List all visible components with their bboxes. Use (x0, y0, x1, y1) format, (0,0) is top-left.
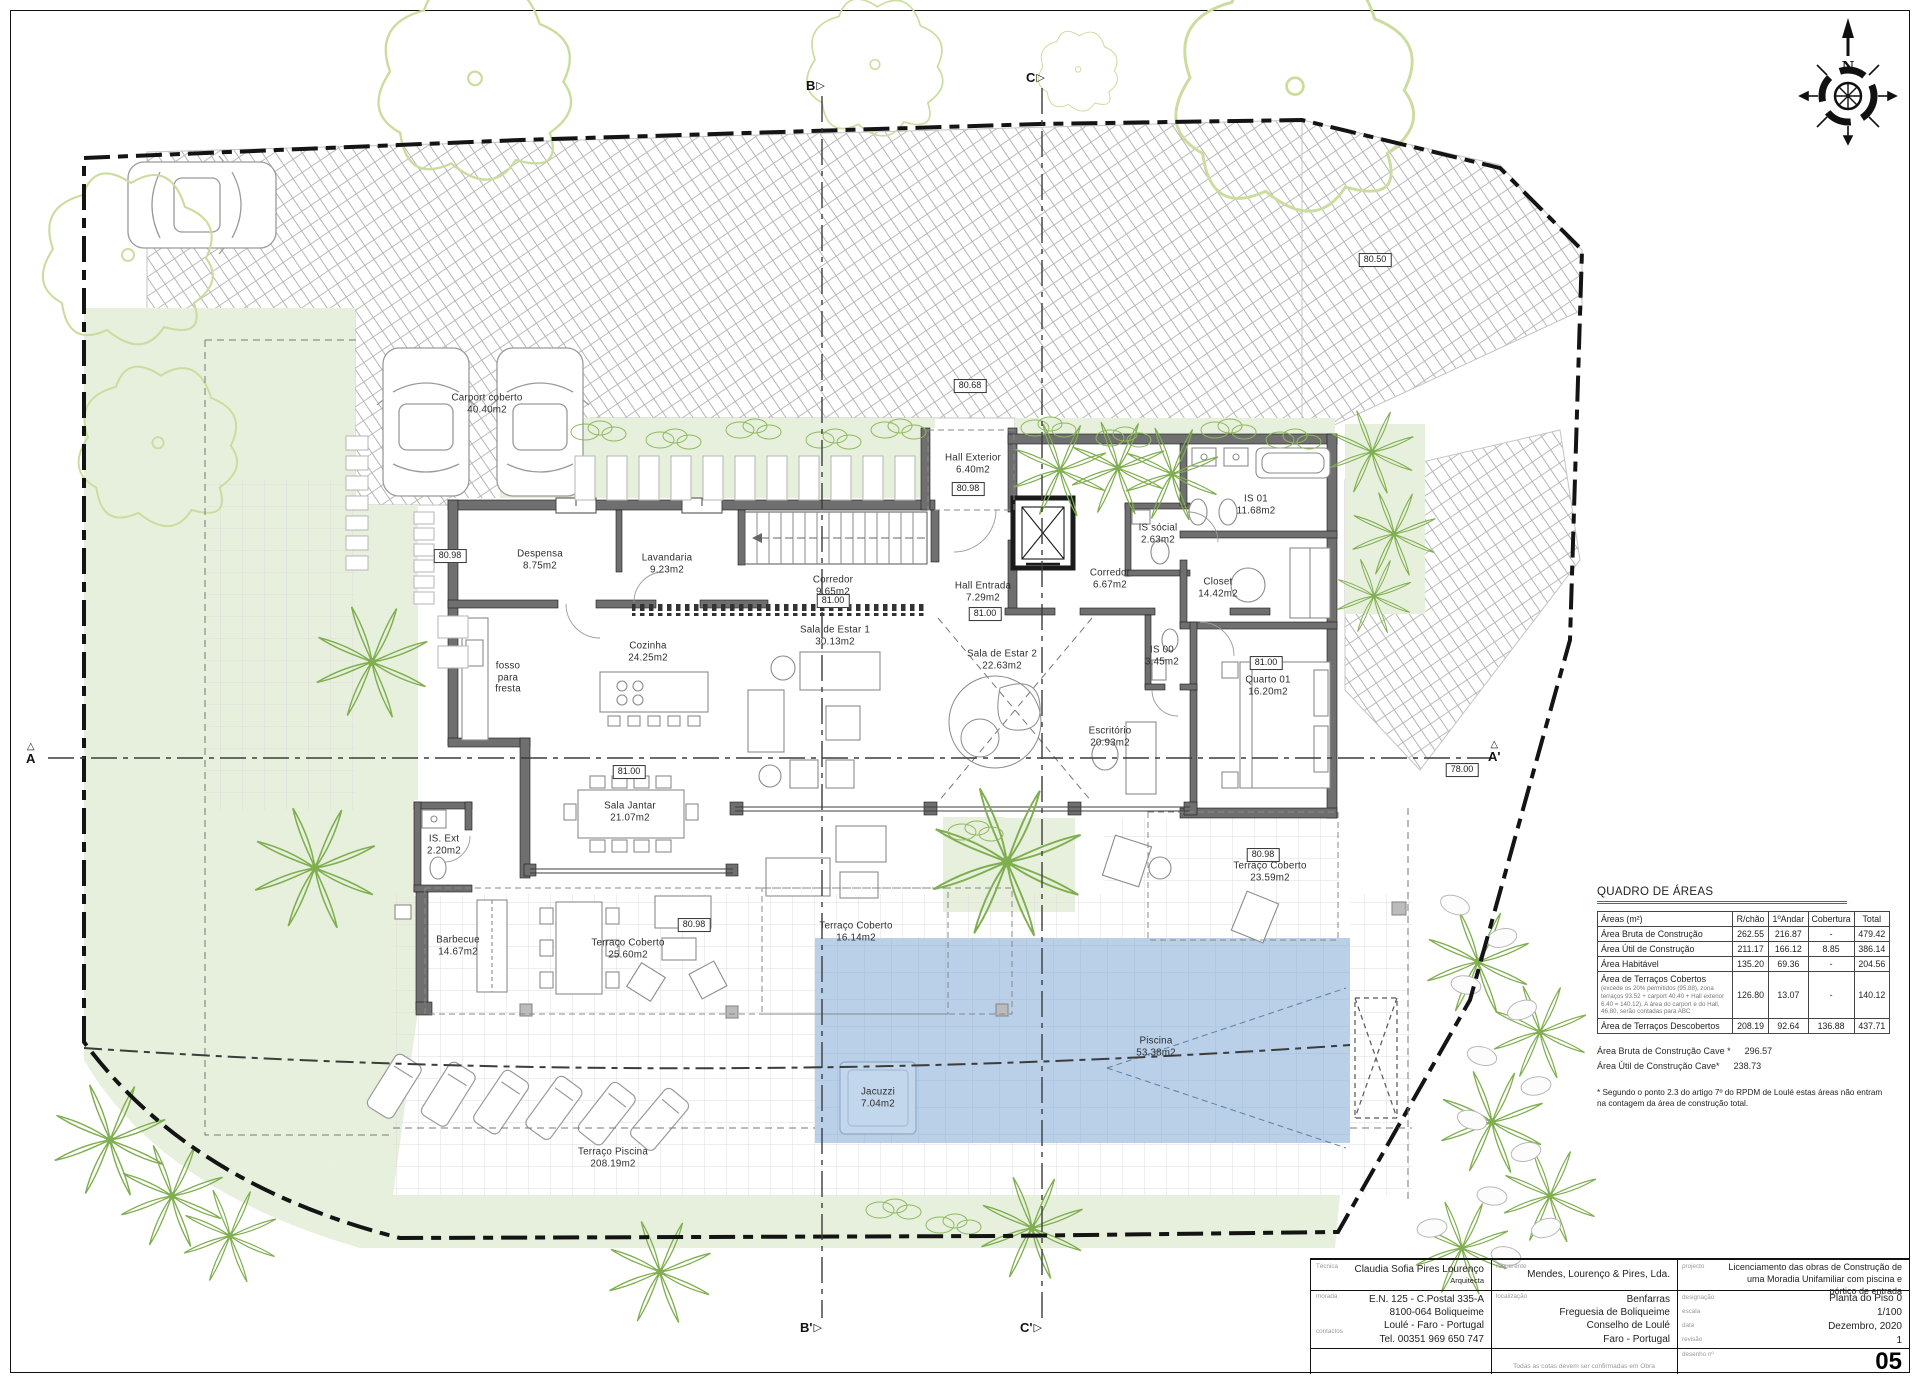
areas-footnote: * Segundo o ponto 2.3 do artigo 7º do RP… (1597, 1087, 1889, 1109)
room-label-despensa: Despensa8.75m2 (517, 548, 563, 571)
table-row: Área Útil de Construção 211.17 166.12 8.… (1598, 942, 1890, 957)
column-header: R/chão (1733, 912, 1769, 927)
client-name: Mendes, Lourenço & Pires, Lda. (1527, 1268, 1670, 1281)
drawing-sheet: N Carport coberto40.40m2 Despensa8.75m2 … (0, 0, 1920, 1383)
room-label-hall-entrada: Hall Entrada7.29m2 (955, 580, 1011, 603)
title-block-note: Todas as cotas devem ser confirmadas em … (1491, 1363, 1677, 1370)
areas-table-title: QUADRO DE ÁREAS (1597, 886, 1847, 904)
address-line: Loulé - Faro - Portugal (1369, 1319, 1484, 1332)
section-marker-a: △A (26, 742, 35, 765)
column-header: 1ºAndar (1769, 912, 1808, 927)
column-header: Total (1854, 912, 1889, 927)
level-marker: 80.98 (952, 482, 985, 496)
location-line: Conselho de Loulé (1559, 1319, 1670, 1332)
areas-header-row: Áreas (m²) R/chão 1ºAndar Cobertura Tota… (1598, 912, 1890, 927)
room-label-sala-estar-1: Sala de Estar 130.13m2 (800, 624, 870, 647)
architect-role: Arquitecta (1354, 1276, 1484, 1286)
location-line: Benfarras (1559, 1293, 1670, 1306)
areas-table: QUADRO DE ÁREAS Áreas (m²) R/chão 1ºAnda… (1597, 882, 1893, 1109)
table-row: Área de Terraços Cobertos(excede os 20% … (1598, 972, 1890, 1019)
section-marker-b: B▷ (806, 78, 825, 93)
room-label-terraco-coberto-2: Terraço Coberto16.14m2 (819, 920, 892, 943)
cave-areas: Área Bruta de Construção Cave *296.57 Ár… (1597, 1044, 1893, 1075)
table-row: Área de Terraços Descobertos 208.19 92.6… (1598, 1019, 1890, 1034)
areas-unit-header: Áreas (m²) (1598, 912, 1733, 927)
title-block-project-column: projecto Licenciamento das obras de Cons… (1677, 1260, 1909, 1374)
level-marker: 78.00 (1446, 763, 1479, 777)
section-marker-b-prime: B'▷ (800, 1320, 822, 1335)
phone: Tel. 00351 969 650 747 (1369, 1333, 1484, 1346)
level-marker: 80.98 (1247, 848, 1280, 862)
room-label-piscina: Piscina53.38m2 (1136, 1035, 1176, 1058)
table-row: Área Bruta de Construção 262.55 216.87 -… (1598, 927, 1890, 942)
level-marker: 80.50 (1359, 253, 1392, 267)
title-block-architect-column: Técnica Claudia Sofia Pires Lourenço Arq… (1311, 1260, 1492, 1374)
section-marker-a-prime: △A' (1488, 740, 1500, 763)
room-label-carport: Carport coberto40.40m2 (451, 392, 522, 415)
table-row: Área Habitável 135.20 69.36 - 204.56 (1598, 957, 1890, 972)
swimming-pool (815, 938, 1397, 1148)
column-header: Cobertura (1808, 912, 1854, 927)
room-label-cozinha: Cozinha24.25m2 (628, 640, 668, 663)
room-label-barbecue: Barbecue14.67m2 (436, 934, 480, 957)
cabinet-row (632, 604, 928, 616)
room-label-jacuzzi: Jacuzzi7.04m2 (861, 1086, 895, 1109)
level-marker: 80.68 (954, 379, 987, 393)
section-marker-c: C▷ (1026, 70, 1045, 85)
drawing-number: 05 (1875, 1346, 1902, 1378)
date-value: Dezembro, 2020 (1828, 1320, 1902, 1333)
level-marker: 81.00 (613, 765, 646, 779)
room-label-corredor-2: Corredor6.67m2 (1090, 567, 1130, 590)
room-label-terraco-coberto-3: Terraço Coberto23.59m2 (1233, 860, 1306, 883)
address-line: 8100-064 Boliqueime (1369, 1306, 1484, 1319)
section-marker-c-prime: C'▷ (1020, 1320, 1042, 1335)
level-marker: 81.00 (817, 594, 850, 608)
room-label-quarto-01: Quarto 0116.20m2 (1245, 674, 1290, 697)
room-label-terraco-coberto-1: Terraço Coberto25.60m2 (591, 937, 664, 960)
location-line: Faro - Portugal (1559, 1333, 1670, 1346)
floor-plan-drawing: N (0, 0, 1920, 1383)
room-label-is-01: IS 0111.68m2 (1237, 493, 1276, 516)
title-block: Técnica Claudia Sofia Pires Lourenço Arq… (1310, 1258, 1909, 1374)
room-label-is-social: IS sócial2.63m2 (1139, 522, 1178, 545)
room-label-lavandaria: Lavandaria9.23m2 (642, 552, 692, 575)
room-label-is-00: IS 003.45m2 (1145, 644, 1179, 667)
compass-rose: N (1800, 18, 1896, 144)
room-label-is-ext: IS. Ext2.20m2 (427, 833, 461, 856)
room-label-fosso: fosso para fresta (486, 661, 530, 696)
title-block-client-column: requerente Mendes, Lourenço & Pires, Lda… (1491, 1260, 1678, 1374)
room-label-escritorio: Escritório20.93m2 (1089, 725, 1132, 748)
architect-name: Claudia Sofia Pires Lourenço (1354, 1263, 1484, 1276)
level-marker: 81.00 (1250, 656, 1283, 670)
designation-value: Planta do Piso 0 (1829, 1292, 1902, 1305)
address-line: E.N. 125 - C.Postal 335-A (1369, 1293, 1484, 1306)
room-label-hall-exterior: Hall Exterior6.40m2 (945, 452, 1001, 475)
room-label-sala-jantar: Sala Jantar21.07m2 (604, 800, 656, 823)
level-marker: 80.98 (434, 549, 467, 563)
room-label-sala-estar-2: Sala de Estar 222.63m2 (967, 648, 1037, 671)
level-marker: 80.98 (678, 918, 711, 932)
level-marker: 81.00 (969, 607, 1002, 621)
table-row-note: (excede os 20% permitidos (95.88), zona … (1601, 985, 1729, 1016)
room-label-closet: Closet14.42m2 (1198, 576, 1238, 599)
room-label-terraco-piscina: Terraço Piscina208.19m2 (578, 1146, 648, 1169)
scale-value: 1/100 (1877, 1306, 1902, 1319)
location-line: Freguesia de Boliqueime (1559, 1306, 1670, 1319)
